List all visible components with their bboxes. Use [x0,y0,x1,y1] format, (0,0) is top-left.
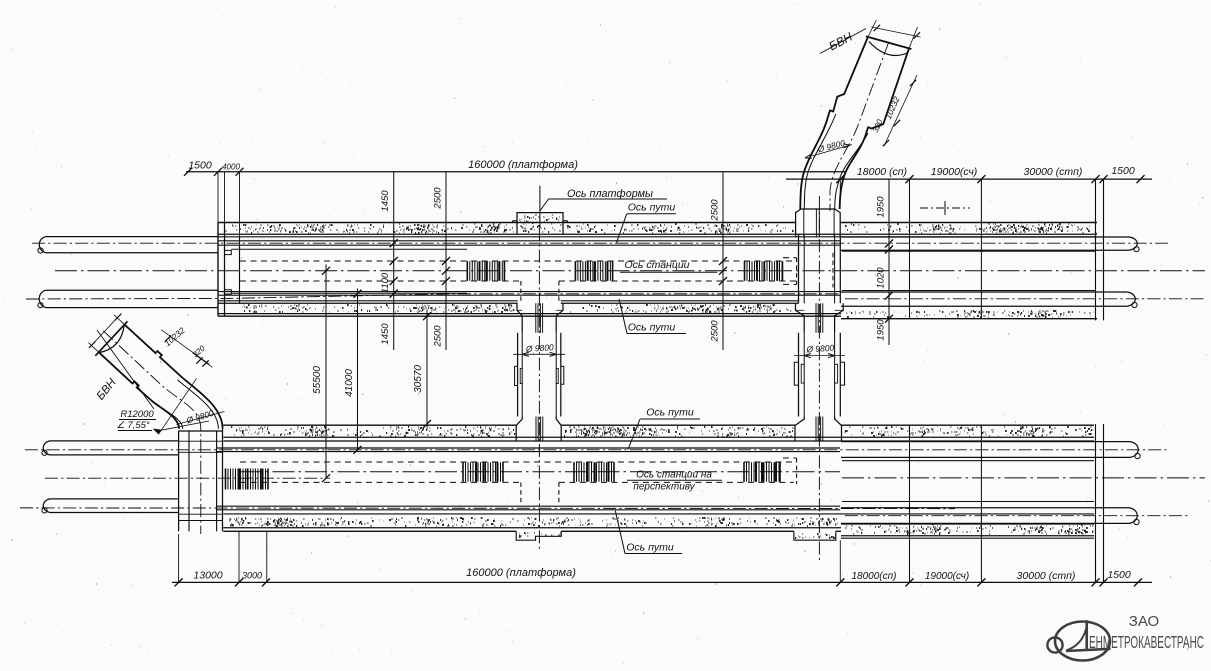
svg-text:10232: 10232 [883,95,902,121]
svg-text:БВН: БВН [95,376,120,402]
svg-text:∠ 7,55°: ∠ 7,55° [116,420,150,431]
svg-text:Ось платформы: Ось платформы [567,188,653,200]
svg-text:4000: 4000 [222,163,240,172]
svg-text:30000 (стп): 30000 (стп) [1017,570,1076,582]
svg-text:41000: 41000 [344,369,355,397]
svg-text:1950: 1950 [876,196,887,218]
svg-text:19000(сч): 19000(сч) [931,166,978,178]
svg-text:R12000: R12000 [120,409,154,420]
svg-text:Ось станции: Ось станции [624,259,689,271]
svg-text:Ø 9800: Ø 9800 [805,343,835,355]
svg-text:2500: 2500 [433,325,444,348]
svg-text:30000 (стп): 30000 (стп) [1024,166,1083,178]
svg-text:ЕНМЕТРОКАВЕСТРАНС: ЕНМЕТРОКАВЕСТРАНС [1089,632,1204,652]
svg-text:Ось пути: Ось пути [628,202,676,214]
svg-text:1100: 1100 [380,272,391,293]
svg-text:Ось пути: Ось пути [626,542,674,554]
svg-text:2500: 2500 [433,187,444,210]
svg-text:Ø 9800: Ø 9800 [816,138,847,155]
svg-text:160000 (платформа): 160000 (платформа) [468,159,578,171]
svg-text:БВН: БВН [827,29,855,53]
svg-text:1450: 1450 [380,323,391,345]
svg-text:2500: 2500 [710,320,721,343]
svg-text:1500: 1500 [188,160,212,172]
svg-text:160000 (платформа): 160000 (платформа) [466,567,576,579]
svg-text:30570: 30570 [413,365,424,393]
svg-text:Ось пути: Ось пути [646,407,694,419]
svg-text:1950: 1950 [876,319,887,341]
svg-text:1020: 1020 [876,267,887,289]
svg-text:320: 320 [871,118,885,134]
svg-text:10232: 10232 [162,325,187,348]
svg-text:перспективу: перспективу [633,482,695,493]
svg-text:1450: 1450 [380,190,391,212]
svg-text:320: 320 [191,343,207,359]
svg-text:18000 (сп): 18000 (сп) [857,166,907,178]
svg-text:18000(сп): 18000(сп) [852,571,897,582]
svg-text:Ось пути: Ось пути [628,322,676,334]
svg-text:19000(сч): 19000(сч) [925,571,969,582]
svg-text:13000: 13000 [193,570,222,582]
svg-text:Ось станции на: Ось станции на [636,470,712,481]
svg-text:1500: 1500 [1107,569,1131,581]
svg-text:Ø 9800: Ø 9800 [525,342,555,354]
svg-text:55500: 55500 [312,366,323,394]
svg-text:2500: 2500 [710,199,721,222]
svg-text:ЗАО: ЗАО [1129,613,1159,630]
svg-text:3000: 3000 [242,571,262,581]
svg-text:1500: 1500 [1111,165,1135,177]
